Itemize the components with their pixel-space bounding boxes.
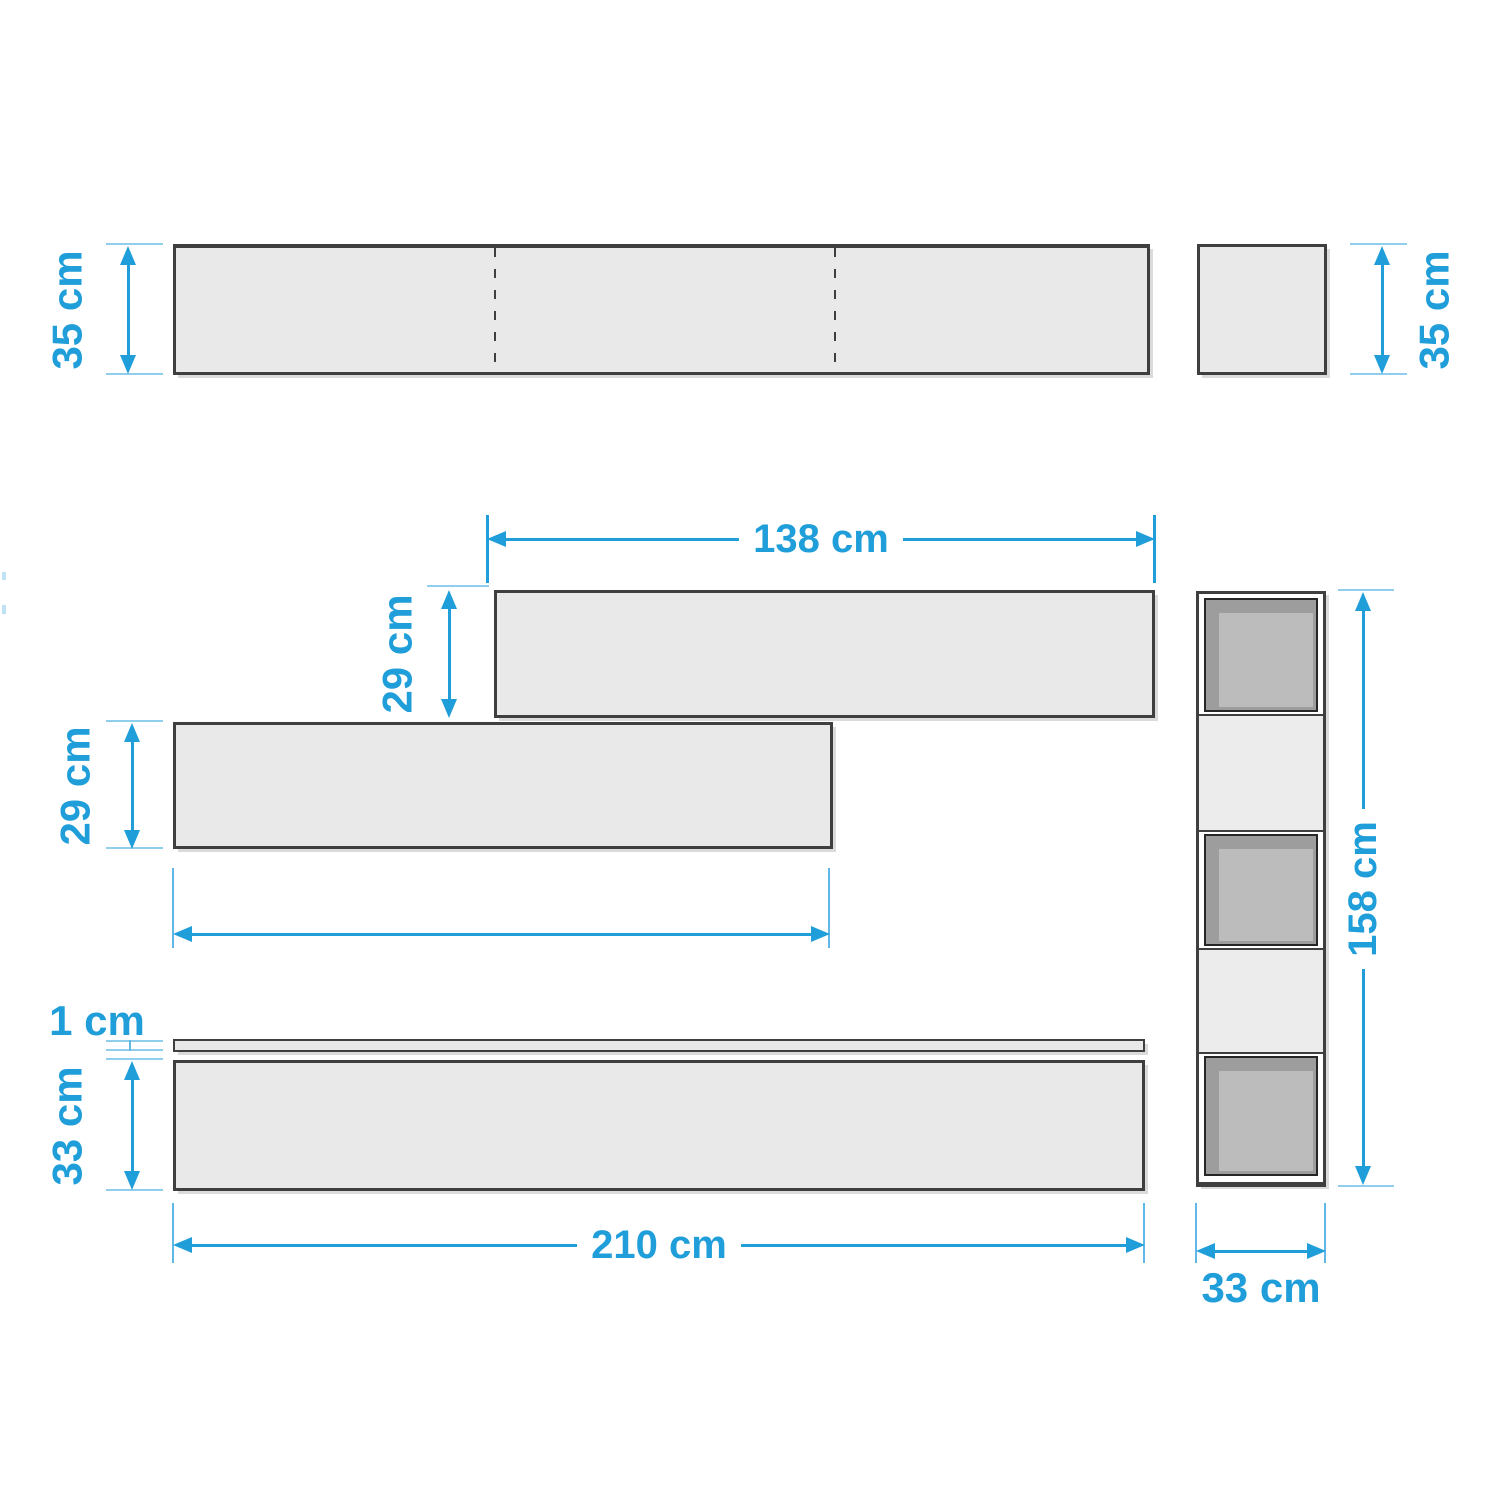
dim-label-upper-shelf-height: 29 cm: [366, 590, 430, 718]
dim-value: 35 cm: [1414, 250, 1456, 369]
dim-label-top-panel-thickness: 1 cm: [38, 1000, 156, 1042]
side-column-cabinet: [1196, 591, 1326, 1187]
dim-arrow-upper-shelf-width: 138 cm: [487, 524, 1155, 554]
arrowhead-up-icon: [441, 590, 457, 609]
extension-line: [106, 243, 163, 245]
arrowhead-up-icon: [124, 723, 140, 742]
arrowhead-down-icon: [1355, 1166, 1371, 1185]
dimension-line: [1362, 969, 1365, 1167]
dimension-line: [1362, 611, 1365, 809]
arrowhead-right-icon: [1126, 1237, 1145, 1253]
arrowhead-left-icon: [487, 531, 506, 547]
upper-wall-shelf-panel: [494, 590, 1155, 718]
arrowhead-right-icon: [1307, 1243, 1326, 1259]
dimension-line: [192, 1244, 577, 1247]
arrowhead-up-icon: [124, 1061, 140, 1080]
dimension-line: [506, 538, 739, 541]
arrowhead-up-icon: [120, 246, 136, 265]
dim-arrow-base-width: 210 cm: [173, 1230, 1145, 1260]
dim-label-gap: 158 cm: [1354, 809, 1372, 969]
dim-label-lower-shelf-height: 29 cm: [44, 722, 108, 849]
extension-line: [106, 1049, 163, 1051]
dim-label-end-panel-depth: 35 cm: [1403, 244, 1467, 375]
dim-value: 35 cm: [47, 250, 89, 369]
column-closed-section: [1199, 714, 1323, 832]
top-panel-strip: [173, 1039, 1145, 1052]
dim-arrow-column-depth: [1196, 1236, 1326, 1266]
dim-label-column-depth: 33 cm: [1176, 1266, 1346, 1310]
dimension-diagram: 35 cm 35 cm 138 cm 29 cm: [0, 0, 1500, 1500]
column-open-compartment: [1204, 1056, 1318, 1176]
dim-arrow-end-panel-depth: [1373, 246, 1391, 374]
dim-arrow-top-shelf-depth: [119, 246, 137, 374]
arrowhead-right-icon: [811, 926, 830, 942]
dim-arrow-lower-shelf-width-unlabeled: [173, 919, 830, 949]
arrowhead-down-icon: [1374, 355, 1390, 374]
panel-joint-dashed-line: [494, 248, 496, 372]
dimension-connector-line: [129, 1040, 131, 1051]
arrowhead-up-icon: [1355, 592, 1371, 611]
arrowhead-down-icon: [124, 1171, 140, 1190]
top-view-end-panel: [1197, 244, 1327, 375]
compartment-back-panel: [1219, 1071, 1313, 1171]
compartment-back-panel: [1219, 849, 1313, 941]
arrowhead-down-icon: [124, 830, 140, 849]
dim-value: 33 cm: [47, 1066, 89, 1185]
arrowhead-down-icon: [120, 355, 136, 374]
arrowhead-left-icon: [173, 1237, 192, 1253]
arrowhead-left-icon: [1196, 1243, 1215, 1259]
dimension-line: [192, 933, 811, 936]
dimension-line: [127, 265, 130, 355]
arrowhead-down-icon: [441, 699, 457, 718]
dimension-line: [741, 1244, 1126, 1247]
extension-line: [106, 1058, 163, 1060]
column-closed-section: [1199, 948, 1323, 1054]
panel-joint-dashed-line: [834, 248, 836, 372]
lower-wall-shelf-panel: [173, 722, 833, 849]
arrowhead-up-icon: [1374, 246, 1390, 265]
column-open-compartment: [1204, 598, 1318, 712]
dim-label-base-height: 33 cm: [36, 1060, 100, 1191]
extension-line: [1338, 589, 1394, 591]
dim-label-top-shelf-depth: 35 cm: [36, 244, 100, 375]
dim-arrow-lower-shelf-height: [123, 723, 141, 849]
stray-mark: [2, 605, 6, 614]
top-view-shelf-panel: [173, 244, 1150, 375]
extension-line: [1338, 1185, 1394, 1187]
dimension-line: [131, 742, 134, 830]
arrowhead-right-icon: [1136, 531, 1155, 547]
extension-line: [106, 1040, 163, 1042]
extension-line: [1350, 243, 1407, 245]
compartment-back-panel: [1219, 613, 1313, 707]
dimension-line: [448, 609, 451, 699]
dim-label-upper-shelf-width: 138 cm: [753, 519, 889, 559]
dim-value: 33 cm: [1201, 1267, 1320, 1309]
column-open-compartment: [1204, 834, 1318, 946]
dimension-line: [1215, 1250, 1307, 1253]
dim-value: 29 cm: [377, 594, 419, 713]
dimension-line: [131, 1080, 134, 1171]
dim-value: 1 cm: [49, 1000, 145, 1042]
dim-arrow-column-height: 158 cm: [1354, 592, 1372, 1185]
dim-label-column-height: 158 cm: [1343, 821, 1383, 957]
dimension-line: [1381, 265, 1384, 355]
dimension-line: [903, 538, 1136, 541]
dim-arrow-upper-shelf-height: [440, 590, 458, 718]
dim-arrow-base-height: [123, 1061, 141, 1190]
dim-label-base-width: 210 cm: [591, 1225, 727, 1265]
arrowhead-left-icon: [173, 926, 192, 942]
extension-line: [106, 720, 163, 722]
extension-line: [427, 585, 489, 587]
base-cabinet-panel: [173, 1060, 1145, 1191]
stray-mark: [2, 572, 6, 580]
dim-value: 29 cm: [55, 726, 97, 845]
